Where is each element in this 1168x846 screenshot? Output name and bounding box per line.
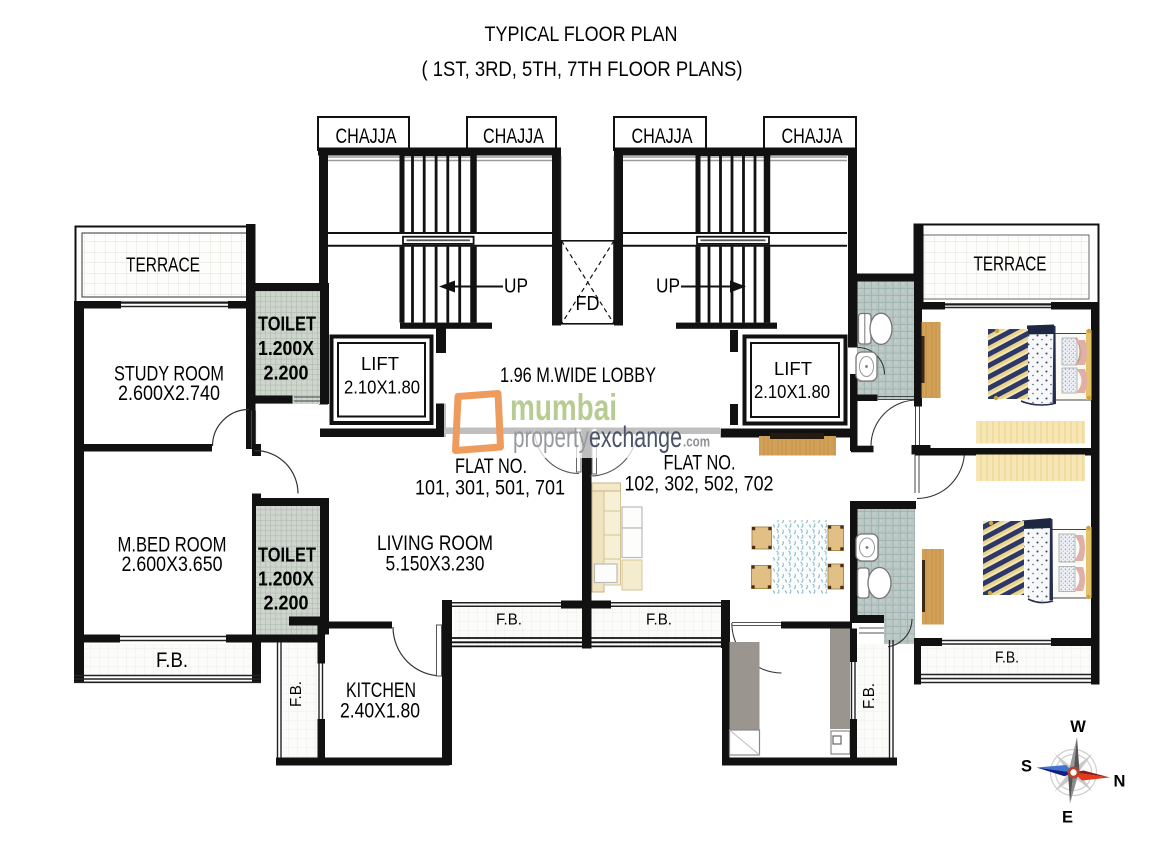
svg-text:TYPICAL FLOOR PLAN: TYPICAL FLOOR PLAN: [485, 22, 678, 46]
svg-text:F.B.: F.B.: [995, 650, 1019, 667]
svg-text:TOILET: TOILET: [258, 544, 316, 567]
svg-text:F.B.: F.B.: [496, 612, 522, 629]
svg-text:FD: FD: [576, 293, 600, 315]
svg-text:CHAJJA: CHAJJA: [483, 124, 544, 148]
svg-text:F.B.: F.B.: [156, 649, 188, 672]
svg-text:1.96 M.WIDE LOBBY: 1.96 M.WIDE LOBBY: [500, 364, 656, 387]
svg-text:1.200X: 1.200X: [258, 568, 314, 591]
svg-text:FLAT NO.: FLAT NO.: [664, 452, 736, 475]
svg-text:2.10X1.80: 2.10X1.80: [344, 377, 420, 398]
svg-text:2.200: 2.200: [264, 592, 309, 615]
svg-text:102, 302, 502, 702: 102, 302, 502, 702: [625, 473, 774, 496]
svg-text:TERRACE: TERRACE: [974, 253, 1047, 276]
svg-text:exchange: exchange: [589, 421, 682, 454]
svg-text:N: N: [1114, 773, 1126, 791]
svg-text:S: S: [1021, 758, 1032, 776]
svg-text:TOILET: TOILET: [258, 313, 316, 336]
svg-text:101, 301, 501, 701: 101, 301, 501, 701: [415, 477, 565, 500]
svg-text:1.200X: 1.200X: [258, 337, 314, 360]
svg-text:F.B.: F.B.: [646, 612, 672, 629]
svg-text:TERRACE: TERRACE: [126, 254, 200, 277]
svg-text:2.10X1.80: 2.10X1.80: [754, 381, 830, 402]
svg-text:UP: UP: [504, 276, 528, 298]
svg-text:UP: UP: [656, 276, 680, 298]
svg-text:2.600X3.650: 2.600X3.650: [122, 553, 223, 576]
svg-text:W: W: [1070, 718, 1086, 736]
svg-text:F.B.: F.B.: [288, 681, 305, 707]
svg-text:5.150X3.230: 5.150X3.230: [386, 553, 485, 576]
svg-text:CHAJJA: CHAJJA: [632, 124, 693, 148]
svg-text:( 1ST, 3RD, 5TH, 7TH FLOOR PLA: ( 1ST, 3RD, 5TH, 7TH FLOOR PLANS): [422, 57, 743, 81]
svg-text:2.40X1.80: 2.40X1.80: [340, 700, 420, 723]
svg-text:CHAJJA: CHAJJA: [782, 124, 843, 148]
svg-text:.com: .com: [683, 434, 710, 451]
svg-text:2.200: 2.200: [264, 362, 309, 385]
svg-text:E: E: [1062, 809, 1073, 827]
svg-text:CHAJJA: CHAJJA: [336, 124, 397, 148]
svg-text:property: property: [513, 421, 589, 454]
svg-text:F.B.: F.B.: [861, 683, 878, 709]
svg-text:FLAT NO.: FLAT NO.: [455, 455, 527, 478]
svg-text:2.600X2.740: 2.600X2.740: [118, 382, 220, 405]
svg-text:LIFT: LIFT: [774, 358, 812, 379]
svg-text:LIFT: LIFT: [361, 353, 399, 374]
